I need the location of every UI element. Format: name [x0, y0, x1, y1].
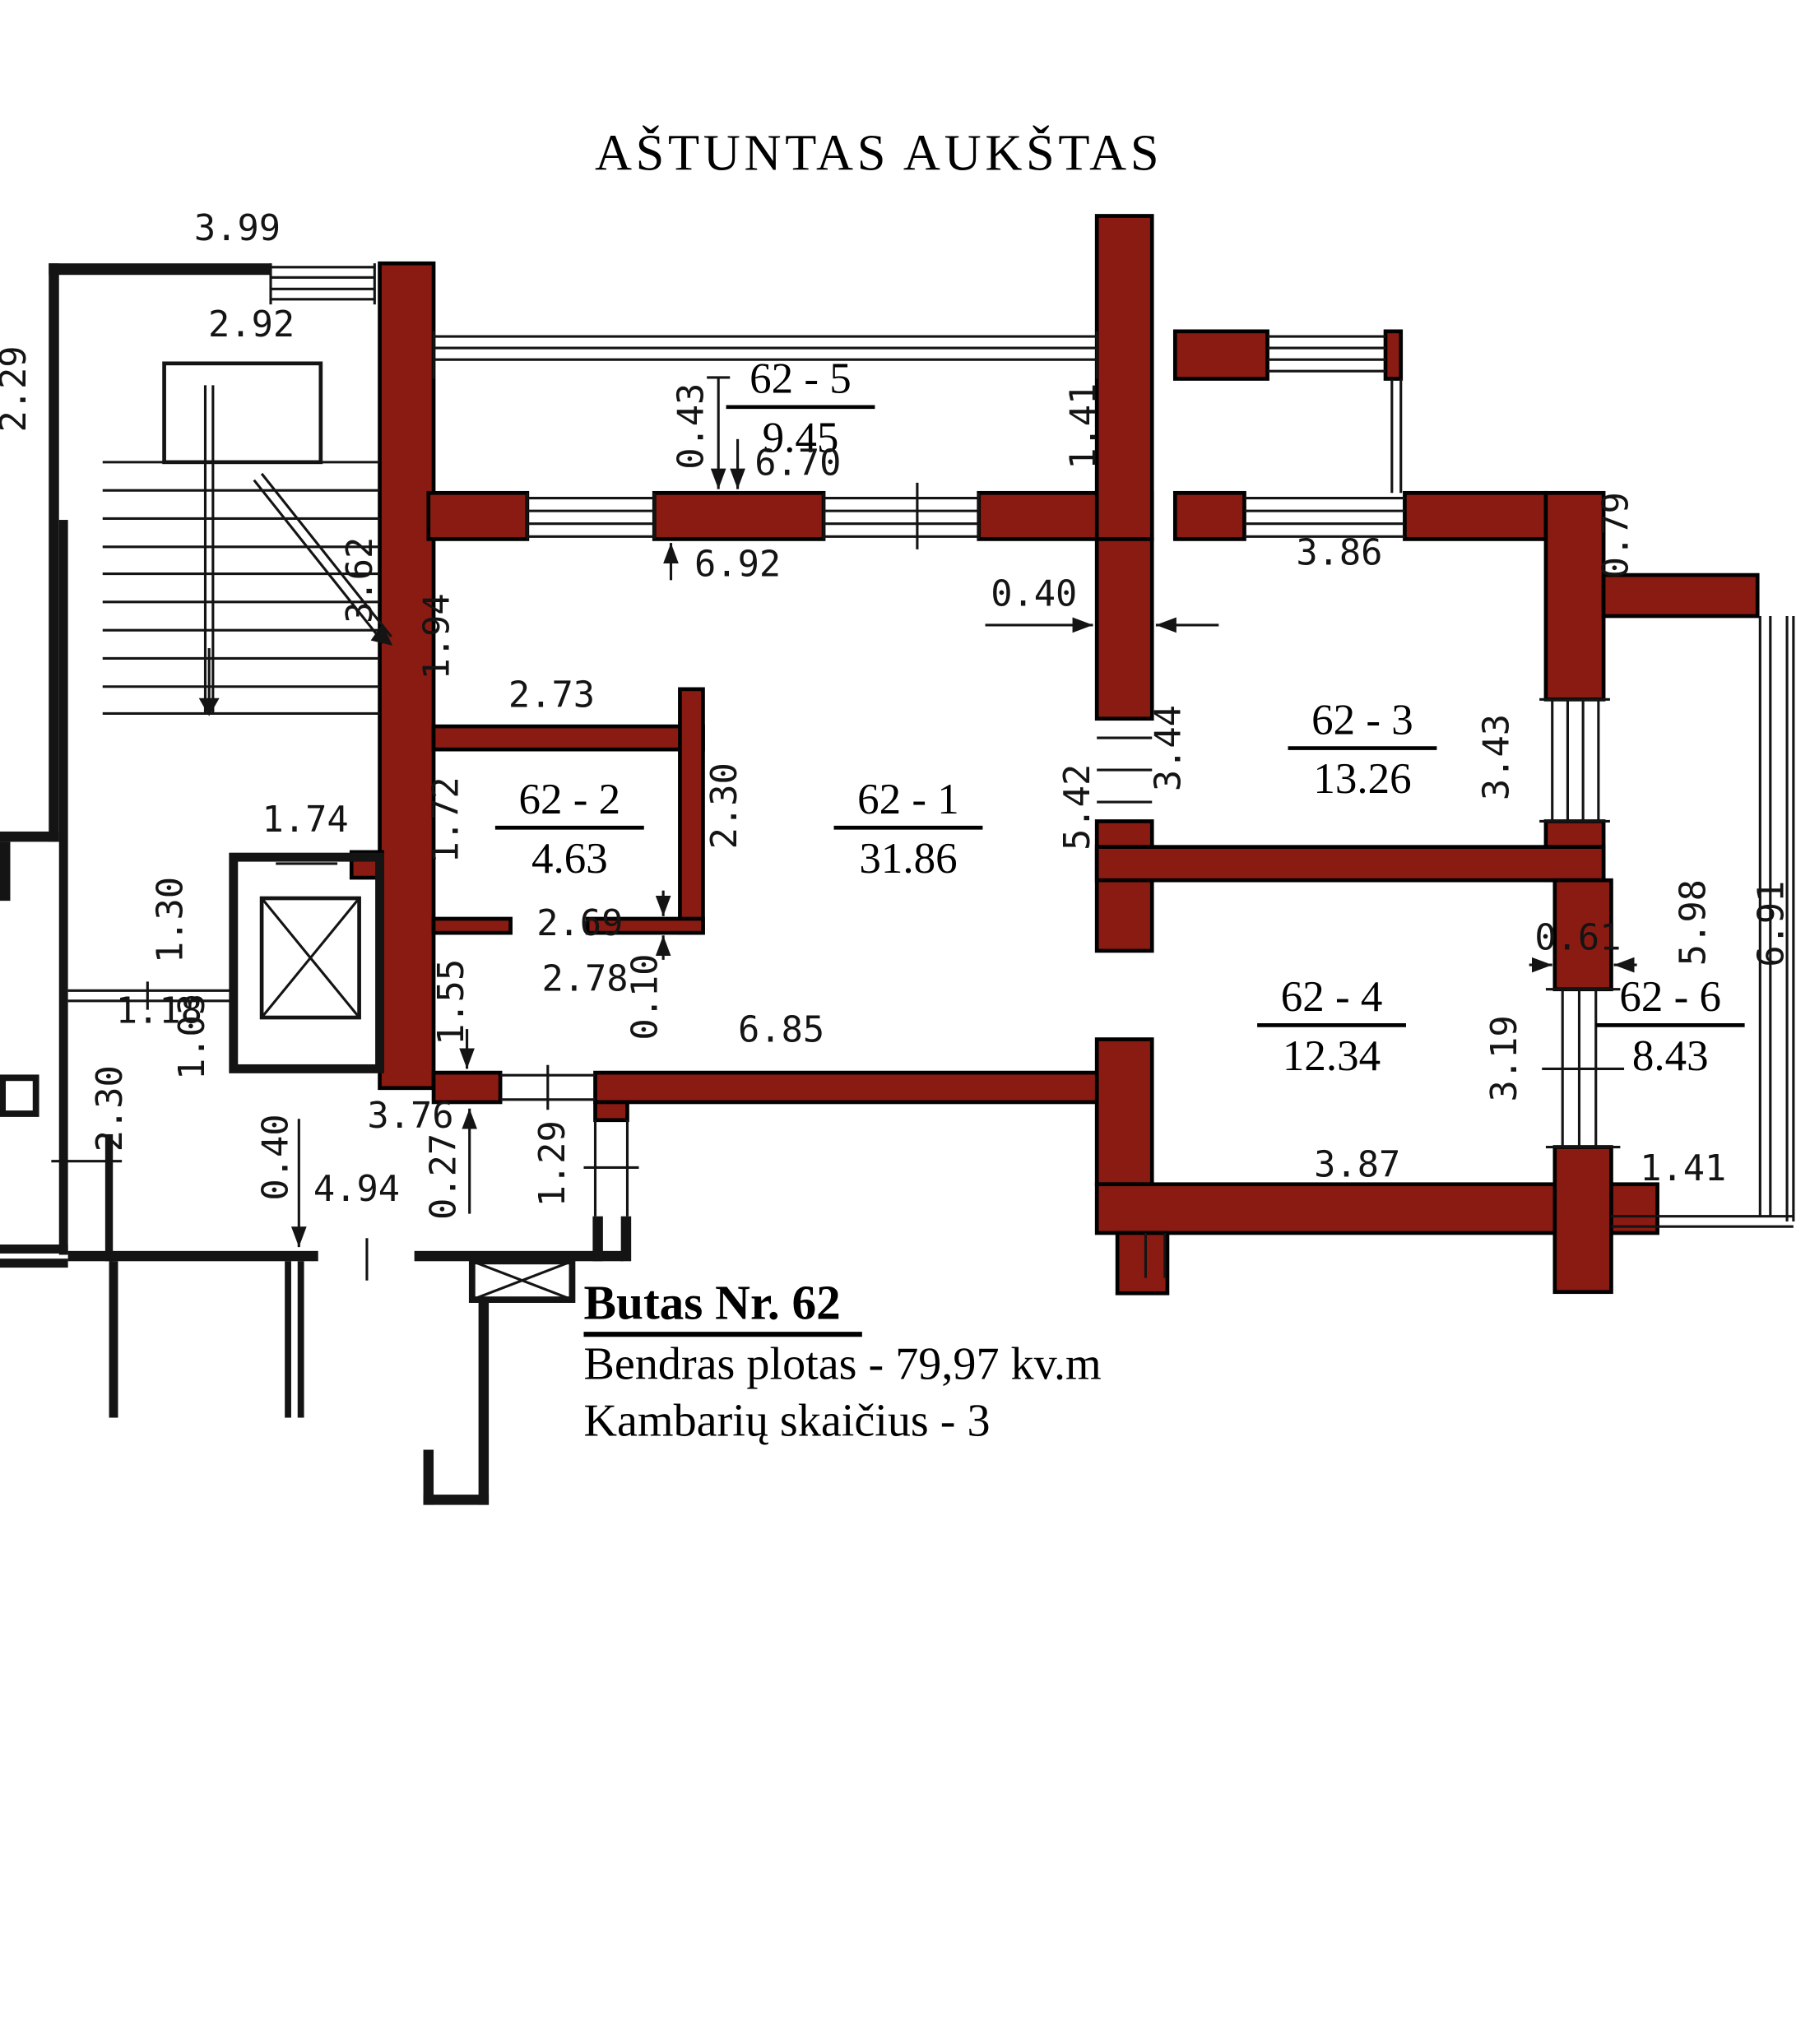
stair-landing [165, 364, 321, 462]
dimension-label: 2.29 [0, 345, 35, 432]
stair-steps [103, 385, 380, 713]
dimension-label: 1.94 [416, 593, 458, 679]
room-id: 62 - 2 [518, 776, 620, 823]
dimension-label: 4.94 [313, 1168, 400, 1210]
room-id: 62 - 5 [749, 355, 852, 403]
room-area: 4.63 [531, 835, 608, 883]
room-id: 62 - 3 [1311, 696, 1413, 744]
elevator-x-icon [262, 898, 360, 1017]
dimension-label: 1.74 [262, 799, 349, 841]
dimension-label: 1.29 [531, 1120, 573, 1207]
dimension-label: 3.87 [1314, 1143, 1400, 1185]
dimension-label: 0.10 [624, 954, 666, 1041]
dimension-label: 1.55 [430, 959, 472, 1045]
dimension-label: 2.69 [536, 902, 623, 944]
common-walls [0, 263, 631, 1504]
dimension-label: 2.30 [89, 1065, 131, 1152]
room-area: 13.26 [1313, 755, 1411, 803]
dimension-label: 5.42 [1056, 764, 1098, 851]
dimension-label: 0.27 [423, 1133, 465, 1220]
total-area: Bendras plotas - 79,97 kv.m [583, 1339, 1101, 1390]
room-id: 62 - 4 [1281, 973, 1383, 1021]
room-area: 8.43 [1632, 1032, 1709, 1080]
dimension-label: 0.40 [991, 573, 1077, 615]
dimension-label: 2.30 [703, 762, 745, 849]
dimension-label: 2.92 [208, 304, 295, 345]
room-id: 62 - 6 [1619, 973, 1721, 1021]
dimension-label: 0.79 [1595, 492, 1637, 578]
dimension-label: 1.72 [425, 776, 467, 863]
page-title: AŠTUNTAS AUKŠTAS [595, 124, 1163, 181]
dimension-label: 3.86 [1296, 532, 1382, 574]
dimension-label: 1.30 [149, 877, 191, 963]
windows [51, 263, 1794, 1281]
dimension-label: 2.78 [541, 957, 628, 999]
floor-plan: AŠTUNTAS AUKŠTAS [0, 0, 1796, 2044]
room-area: 12.34 [1283, 1032, 1381, 1080]
dimension-label: 3.43 [1476, 714, 1518, 800]
dimension-label: 3.99 [194, 207, 281, 249]
vent-shaft [472, 1261, 573, 1300]
dimension-label: 3.19 [1483, 1015, 1525, 1101]
room-id: 62 - 1 [857, 776, 959, 823]
legend: Butas Nr. 62 Bendras plotas - 79,97 kv.m… [583, 1275, 1101, 1446]
dimension-label: 0.43 [670, 383, 712, 470]
dimension-label: 3.76 [367, 1095, 453, 1137]
dimension-label: 3.44 [1148, 705, 1190, 791]
dimension-label: 0.40 [254, 1114, 296, 1200]
dimension-label: 6.85 [738, 1009, 824, 1051]
dimension-label: 6.91 [1750, 881, 1792, 967]
dimension-label: 1.03 [171, 994, 213, 1080]
apartment-number: Butas Nr. 62 [583, 1275, 840, 1329]
elevator [234, 857, 380, 1068]
dimension-label: 5.98 [1672, 879, 1714, 966]
rooms-count: Kambarių skaičius - 3 [583, 1395, 990, 1446]
dimension-label: 0.61 [1534, 916, 1621, 958]
room-area: 31.86 [859, 835, 957, 883]
dimension-label: 6.70 [754, 442, 841, 484]
dimension-label: 1.41 [1640, 1147, 1726, 1189]
dimension-label: 6.92 [694, 544, 781, 586]
dimension-label: 2.73 [508, 674, 595, 716]
dimension-label: 3.62 [339, 537, 381, 623]
dimension-label: 1.41 [1063, 383, 1105, 470]
